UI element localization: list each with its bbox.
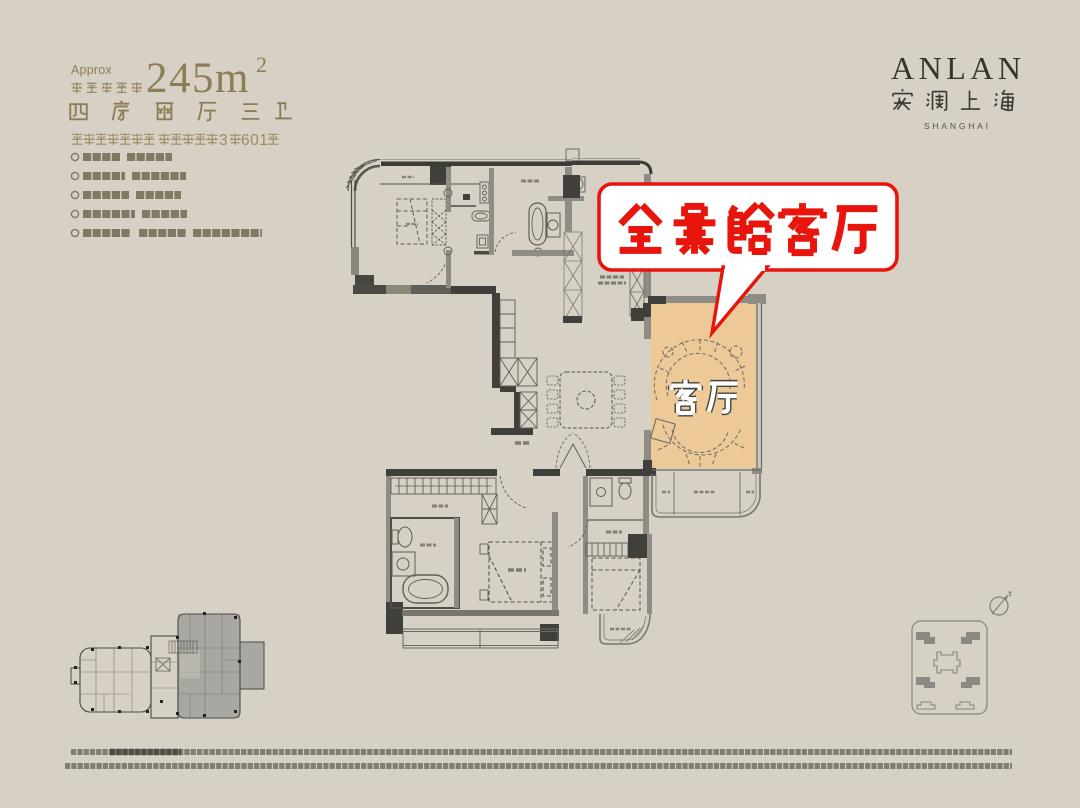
svg-text:ANLAN: ANLAN [891,50,1025,86]
svg-text:601: 601 [241,132,268,149]
svg-text:SHANGHAI: SHANGHAI [924,121,991,131]
svg-text:Approx: Approx [71,63,112,77]
svg-text:3: 3 [219,132,228,149]
svg-text:2: 2 [256,52,267,77]
svg-text:245m: 245m [146,55,250,102]
